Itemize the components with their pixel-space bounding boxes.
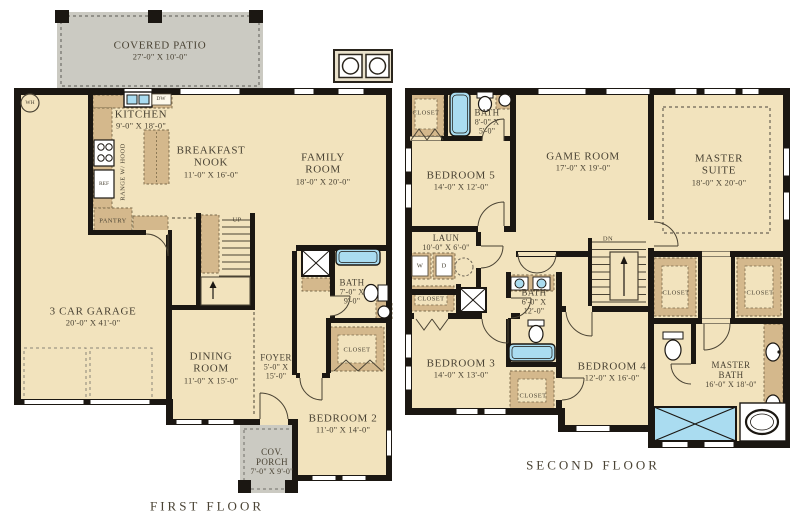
linen-closet-icon [460, 288, 486, 312]
patio-post [249, 10, 263, 23]
dishwasher-icon [152, 94, 171, 105]
bathtub-icon [509, 344, 555, 361]
mud-bench [133, 216, 168, 232]
master-shower-icon [654, 407, 736, 441]
utility-double-sink-icon [334, 50, 392, 82]
toilet-icon [477, 92, 493, 112]
bedroom2-closet-inner [338, 335, 376, 363]
bath-sink-icon [378, 306, 390, 318]
refrigerator-icon [94, 170, 114, 198]
stair-wall-cap [201, 215, 219, 273]
bathtub-icon [450, 92, 470, 136]
second-floor-plan [405, 88, 790, 448]
garage-door [24, 400, 84, 405]
toilet-icon [364, 285, 388, 302]
toilet-icon [663, 332, 683, 360]
pantry-cabinet [94, 208, 132, 233]
water-heater-icon [21, 94, 39, 112]
porch-post [238, 480, 251, 493]
covered-porch-area [238, 425, 298, 493]
floor-plan-drawing [0, 0, 800, 521]
bath-sink-icon [499, 94, 511, 106]
toilet-icon [528, 320, 544, 343]
kitchen-sink-icon [124, 92, 152, 107]
bathtub-icon [336, 249, 380, 265]
patio-post [148, 10, 162, 23]
floor-plan-canvas: COVERED PATIO 27'-0" X 10'-0" KITCHEN 9'… [0, 0, 800, 521]
covered-patio-area [55, 10, 263, 90]
porch-post [285, 480, 298, 493]
garage-door [90, 400, 150, 405]
range-icon [94, 140, 114, 166]
hall-closet-shelf [302, 278, 330, 291]
garden-tub-icon [740, 403, 786, 441]
patio-post [55, 10, 69, 23]
under-stair-shower-icon [302, 250, 330, 276]
